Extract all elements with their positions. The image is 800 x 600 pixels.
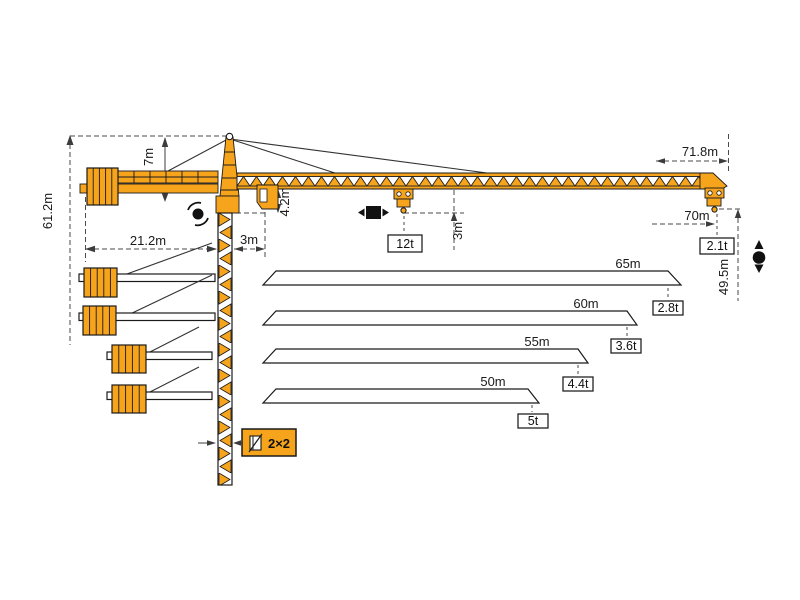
jib-option-length: 50m [480,374,505,389]
pendant-lines [168,139,487,174]
counterweight-option-3 [107,327,212,373]
trolley-travel-icon [358,206,389,219]
cab-window [260,189,267,202]
total-height-dimension: 61.2m [40,135,74,229]
counterweight [87,168,118,205]
counter-jib-radius-label: 21.2m [130,233,166,248]
hook-clearance-dimension: 3m [450,212,465,240]
jib-trolley [394,189,413,213]
jib-option-capacity: 5t [528,414,539,428]
jib-option-50m: 50m 5t [263,374,548,428]
under-hook-height-label: 49.5m [716,259,731,295]
tower-head-label: 7m [141,148,156,166]
main-jib [237,173,727,189]
jib-option-65m: 65m 2.8t [263,256,683,315]
tip-load-callout: 2.1t [700,238,734,254]
operator-cab [257,185,278,209]
jib-length-label: 71.8m [682,144,718,159]
max-radius-label: 70m [684,208,709,223]
jib-option-capacity: 4.4t [568,377,589,391]
mast-cross-section-icon [249,434,262,452]
jib-foot-offset-dimension: 3m [234,232,265,252]
apex-pulley [226,133,232,139]
counter-jib [80,168,218,205]
counterweight-option-4 [107,367,212,413]
jib-option-length: 65m [615,256,640,271]
hoisting-icon [753,240,766,273]
tip-load-label: 2.1t [707,239,728,253]
total-height-label: 61.2m [40,193,55,229]
jib-option-60m: 60m 3.6t [263,296,641,353]
jib-option-length: 60m [573,296,598,311]
hook-clearance-label: 3m [450,222,465,240]
max-load-callout: 12t [388,235,422,252]
mast-section-label: 2×2 [268,436,290,451]
slewing-rotation-icon [188,203,208,226]
jib-option-55m: 55m 4.4t [263,334,593,391]
counterweight-option-1 [79,243,215,297]
jib-tip [700,173,727,189]
tower-apex [220,133,239,196]
mast-section-callout: 2×2 [198,429,296,456]
jib-option-capacity: 3.6t [616,339,637,353]
crane-load-diagram: 61.2m 7m 21.2m 3m 4.2m 3m 71.8m [0,0,800,600]
tip-hook-icon [712,207,717,212]
tower-mast [216,196,239,485]
jib-depth-label: 4.2m [277,188,292,217]
hook-icon [401,208,406,213]
max-load-label: 12t [396,237,414,251]
jib-foot-offset-label: 3m [240,232,258,247]
jib-option-capacity: 2.8t [658,301,679,315]
jib-option-length: 55m [524,334,549,349]
